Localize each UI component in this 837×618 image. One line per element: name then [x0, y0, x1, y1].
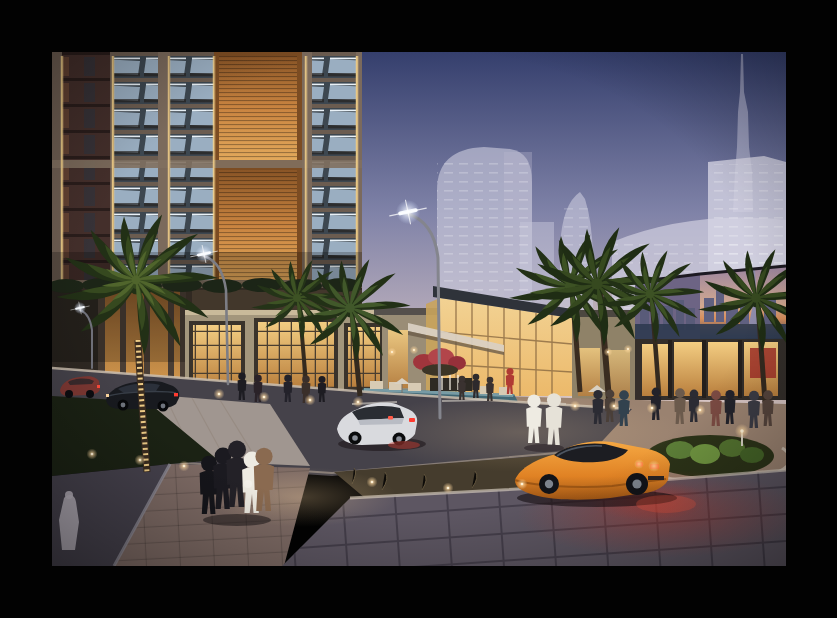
rendering-photo	[52, 52, 786, 566]
vignette	[52, 52, 786, 566]
black-frame	[0, 0, 837, 618]
